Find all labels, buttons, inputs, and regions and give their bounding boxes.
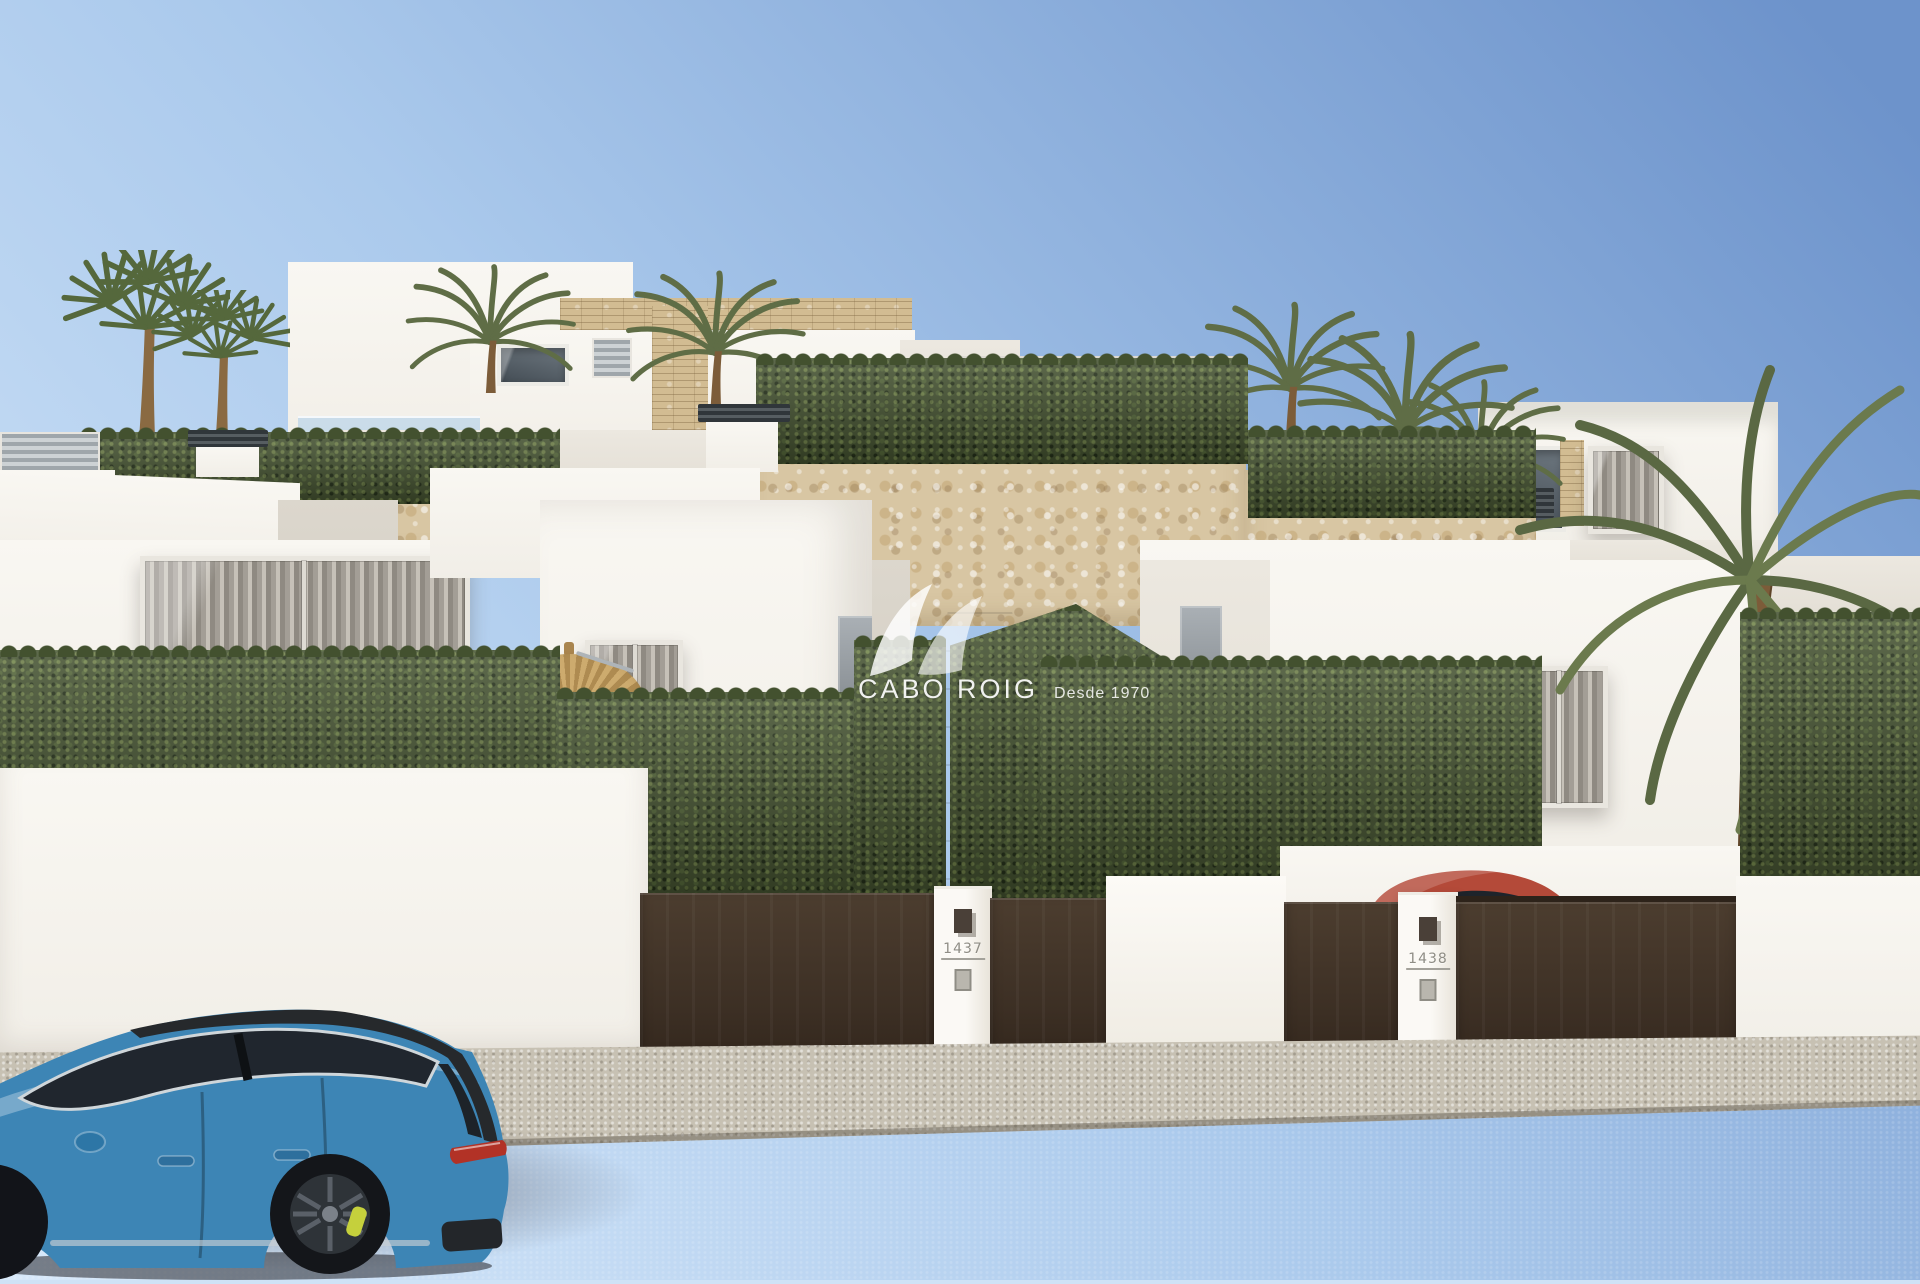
chimney-left: [196, 447, 259, 477]
hedge-upper-right: [1248, 430, 1536, 518]
watermark: CABO ROIGDesde 1970: [858, 578, 1118, 708]
hedge-far-right: [1740, 612, 1920, 902]
letterbox-slot-icon: [954, 909, 972, 933]
chimney-cap-center: [698, 404, 790, 422]
doorbell-icon: [1420, 979, 1437, 1001]
palm-tree: [400, 255, 580, 405]
watermark-tagline: Desde 1970: [1054, 685, 1150, 702]
house-number-plaque: 1438: [1406, 951, 1450, 970]
gate-pillar-1437: 1437: [934, 886, 992, 1071]
blue-estate-car: [0, 992, 530, 1284]
doorbell-icon: [955, 969, 972, 991]
chimney-center: [706, 422, 778, 472]
double-wave-swoosh-logo-icon: [862, 578, 1012, 680]
letterbox-slot-icon: [1419, 917, 1437, 941]
entrance-gate-3: [1284, 902, 1402, 1060]
chimney-cap-left: [188, 430, 268, 447]
entrance-gate-1: [640, 893, 936, 1061]
watermark-brand: CABO ROIG: [858, 674, 1038, 704]
street-wall-center: [1106, 876, 1286, 1062]
entrance-gate-2: [990, 898, 1108, 1058]
hedge-upper-center: [756, 358, 1248, 464]
house-number-plaque: 1437: [941, 941, 985, 960]
